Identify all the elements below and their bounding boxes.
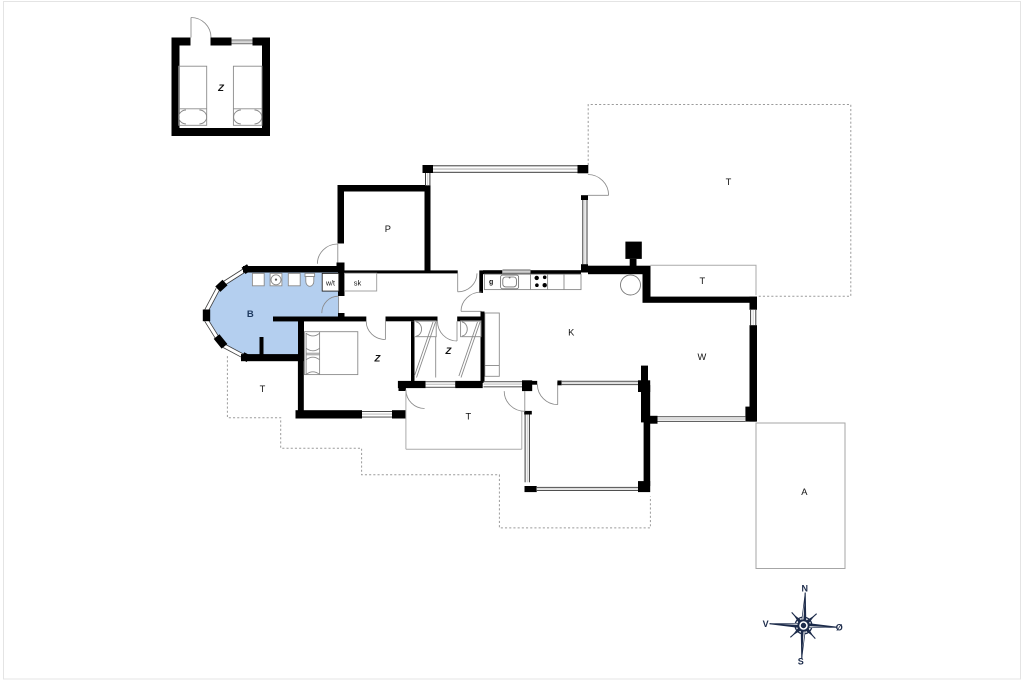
svg-text:T: T xyxy=(700,276,706,286)
svg-text:T: T xyxy=(726,177,732,187)
svg-text:A: A xyxy=(801,487,808,497)
svg-text:W: W xyxy=(698,352,707,362)
svg-text:S: S xyxy=(798,657,804,667)
svg-text:Z: Z xyxy=(217,83,225,94)
svg-text:B: B xyxy=(247,309,254,320)
svg-text:g: g xyxy=(489,279,493,286)
svg-text:N: N xyxy=(802,584,809,594)
svg-text:T: T xyxy=(260,384,266,394)
svg-text:P: P xyxy=(385,224,391,234)
svg-text:Ø: Ø xyxy=(836,622,843,632)
svg-text:Z: Z xyxy=(444,346,452,357)
svg-text:V: V xyxy=(763,619,769,629)
svg-text:K: K xyxy=(568,328,575,338)
svg-text:sk: sk xyxy=(354,278,362,287)
svg-text:w/t: w/t xyxy=(325,280,335,287)
svg-text:Z: Z xyxy=(373,353,381,364)
svg-text:T: T xyxy=(466,412,472,422)
